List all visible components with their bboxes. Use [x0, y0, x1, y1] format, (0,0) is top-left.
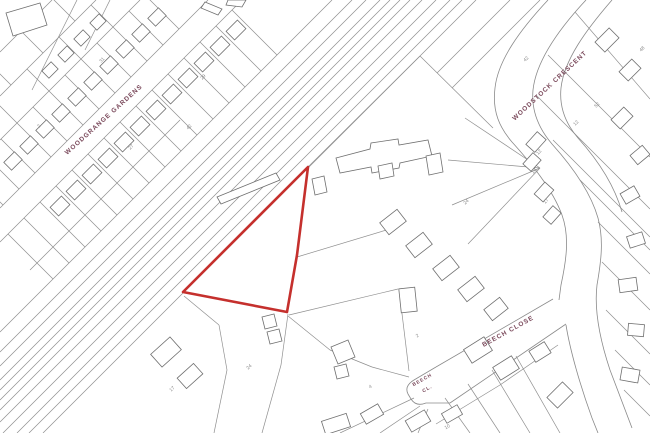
map-canvas: WOODGRANGE GARDENSWOODSTOCK CRESCENTBEEC…	[0, 0, 650, 433]
cadastral-map: WOODGRANGE GARDENSWOODSTOCK CRESCENTBEEC…	[0, 0, 650, 433]
building	[628, 323, 645, 336]
building	[262, 314, 277, 329]
building	[312, 176, 327, 195]
building	[399, 287, 417, 313]
building	[620, 367, 640, 383]
building	[267, 329, 282, 344]
building	[334, 364, 349, 379]
building	[618, 277, 638, 292]
building	[426, 153, 443, 175]
building	[378, 163, 394, 179]
